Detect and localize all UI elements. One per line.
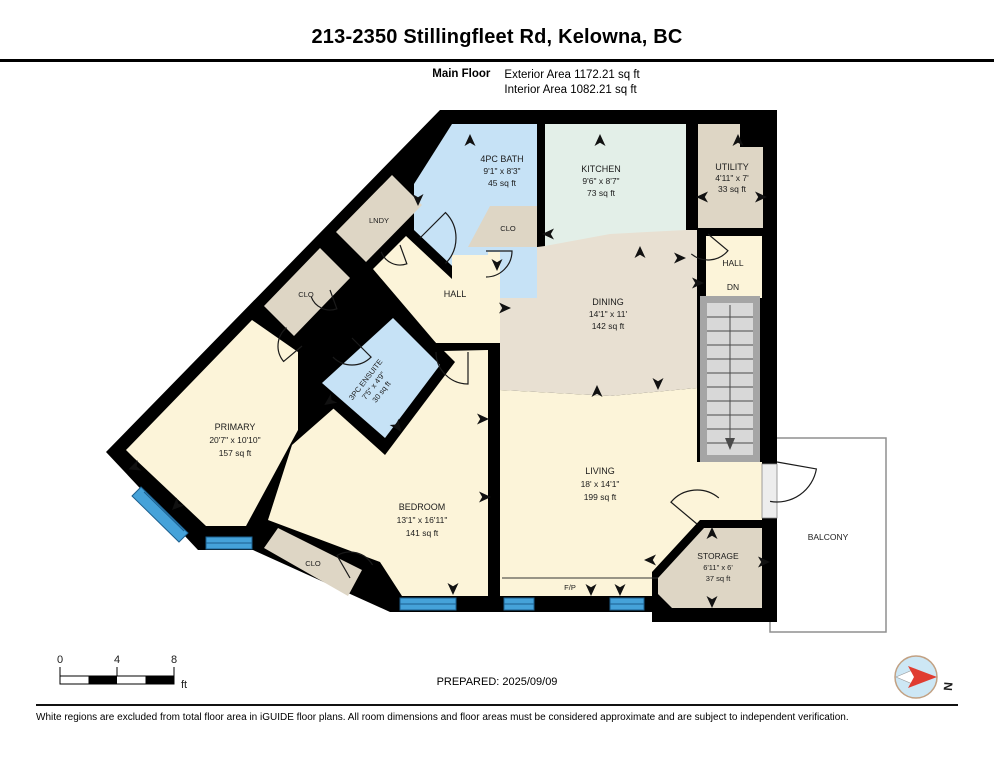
label-kitchen: KITCHEN 9'6" x 8'7" 73 sq ft bbox=[581, 164, 621, 198]
floor-plan-page: 213-2350 Stillingfleet Rd, Kelowna, BC M… bbox=[0, 0, 994, 768]
scale-tick-4: 4 bbox=[114, 654, 120, 666]
disclaimer-text: White regions are excluded from total fl… bbox=[36, 712, 974, 723]
prepared-date: PREPARED: 2025/09/09 bbox=[0, 676, 994, 688]
scale-tick-8: 8 bbox=[171, 654, 177, 666]
label-upper-hall: HALL bbox=[722, 258, 744, 268]
svg-text:37 sq ft: 37 sq ft bbox=[706, 574, 732, 583]
label-clo-bedroom: CLO bbox=[305, 559, 321, 568]
staircase bbox=[700, 296, 760, 462]
label-lndy: LNDY bbox=[369, 216, 389, 225]
svg-text:199 sq ft: 199 sq ft bbox=[584, 492, 617, 502]
svg-text:DINING: DINING bbox=[592, 297, 624, 307]
svg-text:4PC BATH: 4PC BATH bbox=[480, 154, 523, 164]
svg-text:9'1" x 8'3": 9'1" x 8'3" bbox=[483, 166, 520, 176]
label-balcony: BALCONY bbox=[808, 532, 849, 542]
svg-text:UTILITY: UTILITY bbox=[715, 162, 749, 172]
label-living: LIVING 18' x 14'1" 199 sq ft bbox=[581, 466, 620, 502]
svg-text:157 sq ft: 157 sq ft bbox=[219, 448, 252, 458]
floor-plan-drawing: 4PC BATH 9'1" x 8'3" 45 sq ft KITCHEN 9'… bbox=[0, 0, 994, 768]
label-clo-kitchen: CLO bbox=[500, 224, 516, 233]
svg-text:18' x 14'1": 18' x 14'1" bbox=[581, 479, 620, 489]
svg-text:LIVING: LIVING bbox=[585, 466, 615, 476]
svg-text:141 sq ft: 141 sq ft bbox=[406, 528, 439, 538]
svg-text:4'11" x 7': 4'11" x 7' bbox=[715, 173, 749, 183]
label-utility: UTILITY 4'11" x 7' 33 sq ft bbox=[715, 162, 749, 194]
balcony-door-gap bbox=[762, 464, 777, 518]
label-fireplace: F/P bbox=[564, 583, 576, 592]
label-hall: HALL bbox=[444, 289, 467, 299]
svg-text:142 sq ft: 142 sq ft bbox=[592, 321, 625, 331]
svg-text:14'1" x 11': 14'1" x 11' bbox=[589, 309, 628, 319]
label-dn: DN bbox=[727, 282, 739, 292]
svg-text:45 sq ft: 45 sq ft bbox=[488, 178, 517, 188]
footer-divider bbox=[36, 704, 958, 706]
svg-text:STORAGE: STORAGE bbox=[697, 551, 739, 561]
scale-tick-0: 0 bbox=[57, 654, 63, 666]
svg-text:33 sq ft: 33 sq ft bbox=[718, 184, 747, 194]
svg-text:73 sq ft: 73 sq ft bbox=[587, 188, 616, 198]
svg-text:20'7" x 10'10": 20'7" x 10'10" bbox=[209, 435, 260, 445]
svg-text:9'6" x 8'7": 9'6" x 8'7" bbox=[582, 176, 619, 186]
label-dining: DINING 14'1" x 11' 142 sq ft bbox=[589, 297, 628, 331]
svg-text:KITCHEN: KITCHEN bbox=[581, 164, 621, 174]
svg-text:PRIMARY: PRIMARY bbox=[215, 422, 256, 432]
svg-text:6'11" x 6': 6'11" x 6' bbox=[703, 563, 733, 572]
label-clo-diag: CLO bbox=[298, 290, 314, 299]
svg-text:BEDROOM: BEDROOM bbox=[399, 502, 446, 512]
svg-text:13'1" x 16'11": 13'1" x 16'11" bbox=[397, 515, 448, 525]
